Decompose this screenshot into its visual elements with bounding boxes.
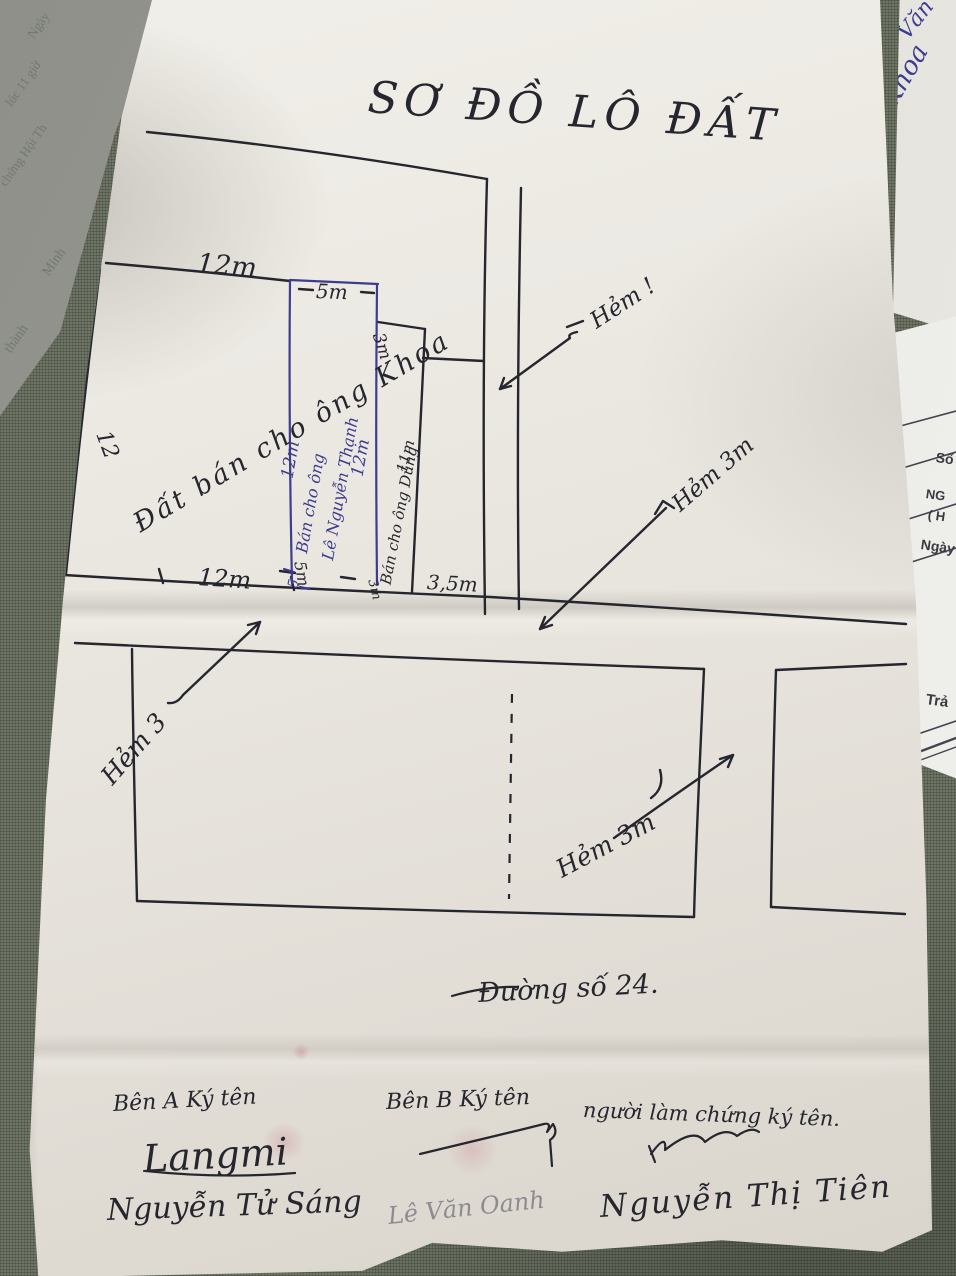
- dim-bottom-1: 12m: [197, 565, 252, 593]
- photo-scene: Ngày lúc 11 giờ chứng Hội Th Minh thành …: [0, 0, 956, 1276]
- dashed-boundary-line: [509, 694, 512, 899]
- party-a-signature: Langmi: [142, 1132, 289, 1178]
- faint-text-line: Minh: [40, 246, 69, 279]
- party-a-name: Nguyễn Tử Sáng: [106, 1187, 362, 1226]
- arrow-hem-right: [540, 501, 674, 629]
- plot-sketch-lines: [0, 0, 956, 1276]
- party-b-label: Bên B Ký tên: [386, 1087, 531, 1114]
- faint-text-line: lúc 11 giờ: [3, 58, 43, 108]
- dim-bottom-4: 3,5m: [426, 572, 478, 595]
- form-fragment: NG: [925, 487, 946, 503]
- dim-top-width: 12m: [196, 250, 258, 282]
- faint-text-line: Ngày: [25, 10, 52, 41]
- signature-witness-mark: [649, 1130, 759, 1162]
- signature-b-mark: [420, 1124, 555, 1166]
- faint-text-line: chứng Hội Th: [0, 121, 49, 188]
- blue-note-word: Khoa: [877, 40, 933, 111]
- faint-text-line: thành: [2, 323, 31, 357]
- form-fragment: Số: [935, 450, 955, 466]
- blue-note-word: Văn: [894, 0, 938, 44]
- form-fragment: Trả: [925, 692, 949, 710]
- black-ink-lines: [64, 132, 906, 917]
- dim-bottom-2: 5m: [291, 560, 311, 588]
- dim-5m-strip: 5m: [316, 281, 348, 302]
- arrow-hem-left: [168, 622, 260, 703]
- main-sheet: SƠ ĐỒ LÔ ĐẤT 12m 5m 3m 12 Đất bán cho ôn…: [0, 0, 956, 1276]
- form-fragment: ( H: [927, 508, 946, 523]
- arrow-hem-top: [500, 321, 583, 389]
